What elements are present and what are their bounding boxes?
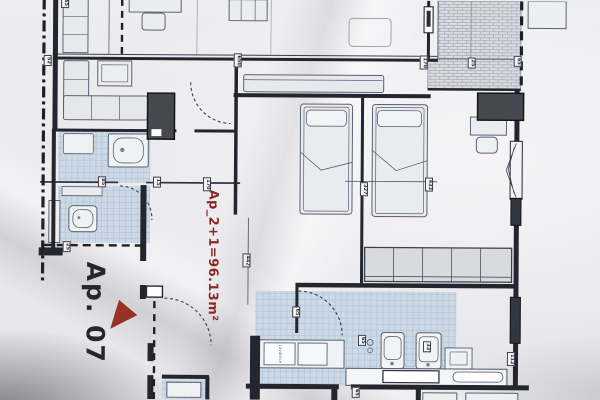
dimension-label: 65 (352, 387, 360, 398)
dimension-label: 25 (63, 241, 71, 252)
dimension-label: 65 (292, 306, 300, 317)
dimension-label: 65 (358, 335, 366, 346)
plan-layer: Ap. 07 Ap_2+1=96.13m² Lavatrice 65526501… (0, 0, 600, 400)
washer-label: Lavatrice (278, 345, 282, 364)
wardrobe-unit (477, 93, 523, 120)
dimension-label: 15 (153, 177, 161, 188)
dimension-label: 85 (98, 176, 106, 187)
dimension-label: 170 (420, 56, 428, 70)
dimension-label: 65 (514, 56, 522, 67)
dimension-label: 170 (203, 177, 211, 191)
dimension-label: 433 (425, 178, 433, 192)
dimension-label: 33 (423, 341, 431, 352)
dimension-label: 442 (243, 253, 251, 267)
dimension-label: 52 (44, 55, 52, 66)
dimension-label: 25 (468, 58, 476, 69)
apartment-area-label: Ap_2+1=96.13m² (205, 190, 221, 322)
dimension-label: 650 (234, 53, 242, 67)
floor-plan-photo: Ap. 07 Ap_2+1=96.13m² Lavatrice 65526501… (0, 0, 600, 400)
dimension-label: 327 (360, 182, 368, 196)
apartment-number-label: Ap. 07 (80, 262, 110, 364)
dimension-label: 65 (61, 0, 69, 8)
balcony-hatch (428, 1, 522, 91)
dimension-label: 112 (507, 352, 515, 366)
